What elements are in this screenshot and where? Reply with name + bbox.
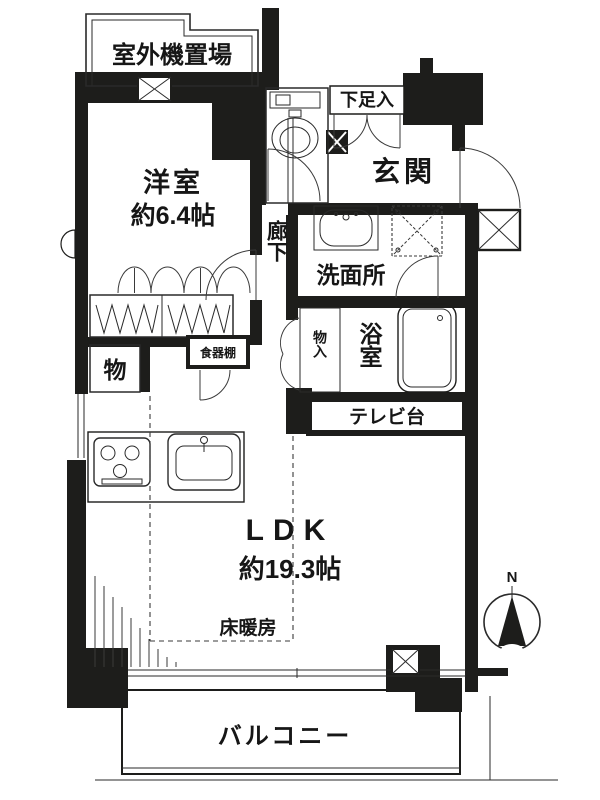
floor-heating-label: 床暖房 bbox=[219, 616, 276, 639]
toilet-room-outline bbox=[266, 88, 328, 203]
toilet-cistern bbox=[270, 92, 320, 108]
toilet-bowl-inner bbox=[280, 127, 310, 153]
wall bbox=[75, 72, 88, 393]
western-room-size: 約6.4帖 bbox=[131, 201, 216, 230]
kitchen-counter-outline bbox=[88, 432, 244, 502]
kitchen-sink-outline bbox=[168, 434, 240, 490]
wall bbox=[262, 8, 279, 90]
wall bbox=[286, 308, 298, 320]
wall bbox=[465, 203, 478, 692]
wall bbox=[403, 73, 483, 125]
wall bbox=[452, 125, 465, 151]
grill-icon bbox=[102, 479, 142, 484]
wall bbox=[67, 648, 128, 708]
bathroom: 物入 浴室 bbox=[281, 304, 456, 392]
wall bbox=[212, 103, 262, 160]
burner-icon bbox=[114, 465, 127, 478]
shoe-box-label: 下足入 bbox=[340, 90, 394, 110]
pillar-box bbox=[138, 77, 171, 101]
hanger-icon bbox=[168, 305, 230, 333]
tv-stand-label: テレビ台 bbox=[349, 405, 425, 428]
western-room-label: 洋室 bbox=[143, 167, 203, 198]
wall bbox=[286, 215, 298, 310]
pipe-shaft-box bbox=[478, 210, 520, 250]
wall bbox=[258, 86, 266, 205]
corridor-label: 廊下 bbox=[265, 219, 289, 262]
bath-folding-door bbox=[281, 354, 299, 390]
bath-folding-door bbox=[281, 318, 299, 354]
door-arc bbox=[396, 256, 438, 298]
bathtub-inner bbox=[403, 309, 451, 387]
wall bbox=[288, 203, 478, 215]
wall bbox=[415, 678, 462, 712]
burner-icon bbox=[125, 446, 139, 460]
wall bbox=[75, 386, 88, 394]
washroom-label: 洗面所 bbox=[317, 262, 386, 288]
vanity-sink bbox=[320, 210, 372, 246]
bathroom-label: 浴室 bbox=[356, 322, 383, 368]
wall bbox=[420, 58, 433, 74]
wall bbox=[140, 345, 150, 392]
door-arc bbox=[217, 267, 250, 293]
toilet-bowl-icon bbox=[272, 118, 318, 158]
wall bbox=[250, 300, 262, 345]
vent-icon bbox=[61, 230, 75, 258]
kitchen bbox=[88, 432, 244, 502]
compass: N bbox=[484, 569, 540, 656]
ldk-label: LDK bbox=[246, 514, 335, 547]
bathtub-icon bbox=[398, 304, 456, 392]
floor-plan-page: 室外機置場 洋室 約6.4帖 物 食器棚 bbox=[0, 0, 600, 800]
door-arc bbox=[206, 250, 256, 300]
western-room: 洋室 約6.4帖 bbox=[61, 167, 256, 337]
shaft-box bbox=[326, 130, 348, 154]
storage-label: 物 bbox=[104, 357, 127, 383]
wall bbox=[470, 668, 508, 676]
entrance-area: 下足入 玄関 bbox=[288, 86, 520, 250]
door-arc bbox=[151, 267, 184, 293]
toilet-cistern-detail bbox=[276, 95, 290, 105]
balcony-label: バルコニー bbox=[218, 723, 353, 750]
ldk: LDK 約19.3帖 床暖房 bbox=[78, 394, 466, 678]
walls bbox=[67, 8, 508, 712]
door-arc bbox=[200, 370, 230, 400]
closet-folding-doors bbox=[118, 267, 250, 293]
front-door-arc bbox=[460, 148, 520, 208]
bath-closet-label: 物入 bbox=[312, 329, 328, 358]
bathtub-drain bbox=[438, 316, 443, 321]
tv-stand: テレビ台 bbox=[306, 396, 468, 436]
compass-north-label: N bbox=[507, 569, 518, 586]
toilet-seat-hinge bbox=[289, 110, 301, 117]
outdoor-unit-label: 室外機置場 bbox=[112, 41, 232, 69]
balcony: バルコニー bbox=[95, 690, 558, 780]
door-arc bbox=[367, 115, 400, 148]
burner-icon bbox=[101, 446, 115, 460]
compass-needle-icon bbox=[498, 596, 526, 646]
wall bbox=[67, 460, 86, 650]
floor-plan-drawing: 室外機置場 洋室 約6.4帖 物 食器棚 bbox=[0, 0, 600, 800]
pillar-box bbox=[392, 649, 419, 674]
cupboard-label: 食器棚 bbox=[199, 345, 236, 360]
washroom: 洗面所 bbox=[314, 206, 442, 298]
compass-needle-notch bbox=[501, 644, 523, 656]
entrance-label: 玄関 bbox=[372, 155, 436, 187]
hanger-icon bbox=[96, 305, 158, 333]
door-arc bbox=[268, 149, 320, 201]
ldk-size: 約19.3帖 bbox=[239, 554, 342, 584]
faucet-icon bbox=[201, 437, 208, 444]
